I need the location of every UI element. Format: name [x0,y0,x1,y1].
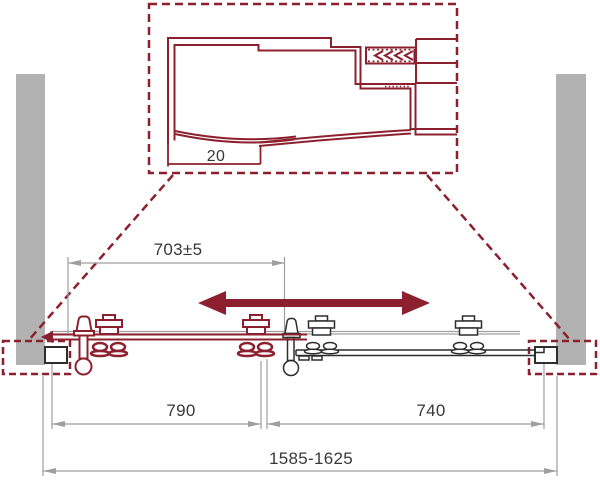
glass-panel-edge [416,39,457,83]
gasket-chevrons-icon [375,51,413,60]
dimension-fixed-panel: 740 [416,402,445,419]
dimension-travel: 703±5 [154,241,203,258]
left-wall [16,74,45,365]
sliding-panel-knob-stem [80,336,88,359]
fixed-panel-roller [305,316,339,354]
fixed-panel-clamp [312,356,322,360]
fixed-panel-ring [284,361,299,376]
dimension-sliding-panel: 790 [166,402,195,419]
slide-direction-arrow-icon [198,291,430,315]
left-wall-profile [45,347,67,363]
dimension-detail-offset: 20 [207,149,225,165]
fixed-panel-knob [285,319,298,334]
dimension-lines [43,257,557,476]
installation-diagram: 703±5 20 790 740 1585-1625 [0,0,600,482]
fixed-panel-roller [452,316,486,354]
right-wall-profile [535,347,557,363]
fixed-panel-knob-stem [288,338,295,361]
dimension-arrowheads [43,260,557,474]
dimension-overall: 1585-1625 [269,450,353,467]
callout-frames [3,4,596,374]
fixed-panel-clamp [299,356,309,360]
sliding-panel-ring [76,359,92,375]
sliding-panel-knob [77,317,92,332]
diagram-canvas [0,0,600,482]
right-wall [556,74,586,365]
